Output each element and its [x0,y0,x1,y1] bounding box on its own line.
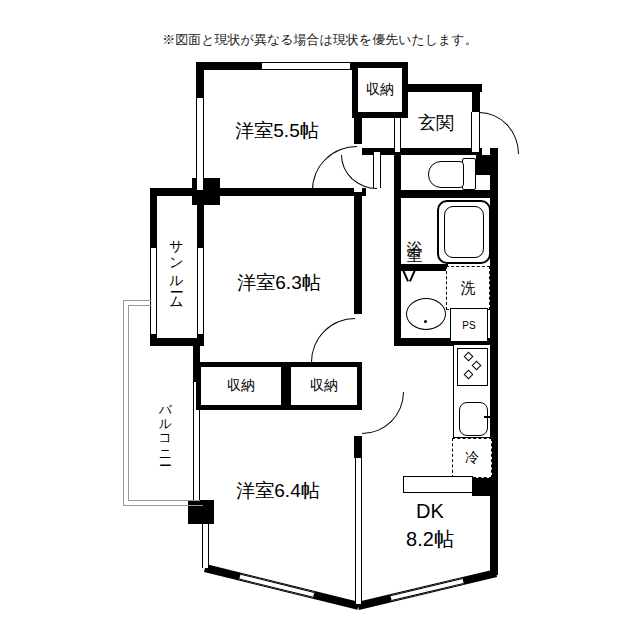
window [150,248,157,334]
room-label-western-room-63: 洋室6.3帖 [204,215,354,350]
room-label-closet-top: 収納 [352,62,408,118]
room-label-western-room-64: 洋室6.4帖 [202,428,354,553]
room-label-balcony: バルコニー [148,352,182,502]
toilet-bowl [428,161,464,188]
room-label-closet-left: 収納 [196,362,286,410]
faucet-icon [484,416,492,418]
angled-wall [357,569,497,610]
balcony-outline [123,300,124,506]
window [239,574,314,598]
dk-counter [403,476,473,493]
toilet-tank [462,158,476,190]
window [262,62,350,70]
balcony-outline [128,305,151,306]
angled-wall [204,564,359,610]
wash-basin [406,298,446,330]
door-opening [354,314,362,364]
window [390,578,463,601]
wall [490,148,498,575]
entrance-step-line [394,112,401,152]
wall-junction [476,155,496,175]
room-label-dk-name: DK [388,498,472,524]
wall [404,84,482,92]
door-swing-arc [479,112,519,154]
room-label-closet-right: 収納 [286,362,362,410]
room-label-dk-size: 8.2帖 [388,526,472,552]
floor-plan: ※図面と現状が異なる場合は現状を優先いたします。 [0,0,640,640]
kitchen-sink [459,402,488,436]
door-swing-arc [362,392,404,434]
bathtub-inner [444,206,484,258]
balcony-outline [123,505,203,506]
basin-drain-dot [424,320,427,323]
room-label-pipe-space: PS [450,308,488,342]
window [197,248,204,334]
wall [394,190,497,198]
room-label-western-room-55: 洋室5.5帖 [202,75,352,187]
balcony-outline [123,300,151,301]
room-label-refrigerator: 冷 [452,438,492,478]
room-label-laundry: 洗 [446,266,490,310]
wall [150,338,204,346]
room-label-entrance: 玄関 [404,100,468,146]
room-label-sunroom: サンルーム [158,197,196,337]
sliding-partition [355,458,362,604]
room-label-bathroom: 浴室 [399,200,429,266]
balcony-outline [128,305,129,501]
disclaimer-text: ※図面と現状が異なる場合は現状を優先いたします。 [0,31,640,49]
